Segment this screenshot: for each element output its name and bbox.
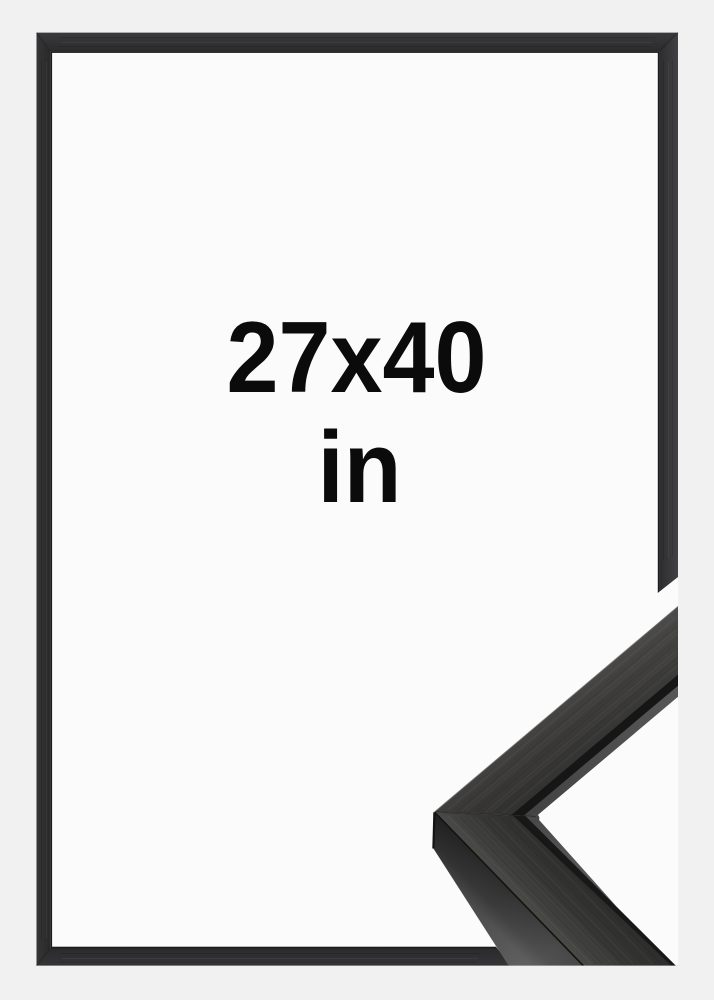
svg-text:27x40: 27x40 [227,302,487,414]
svg-text:in: in [318,412,402,524]
